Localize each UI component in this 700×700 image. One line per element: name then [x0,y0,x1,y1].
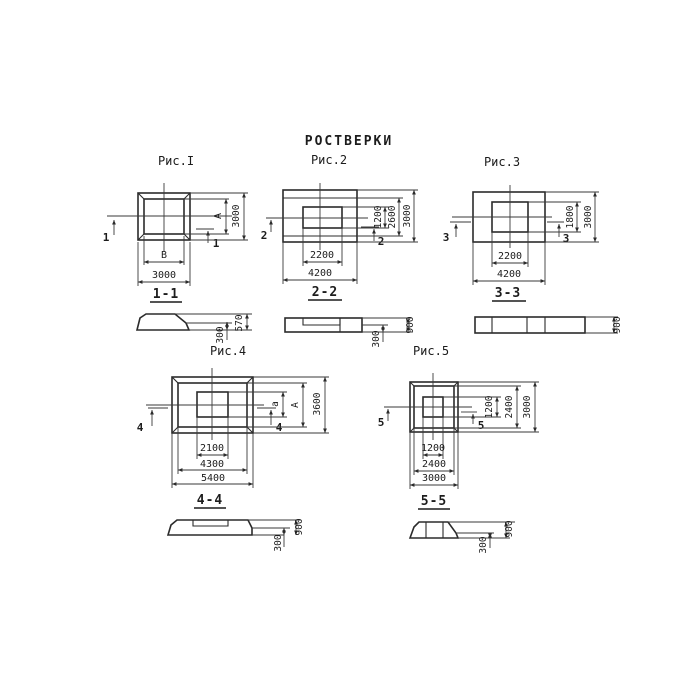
section-mark-label: 2 [378,235,385,248]
drawing-sheet: РОСТВЕРКИ Рис.I 1 1 В [0,0,700,700]
dim-label: А [213,213,224,219]
figure-4-section-view: 4-4 300 900 [168,493,305,552]
dim-label: 300 [215,326,226,343]
section-mark-label: 1 [103,231,110,244]
dim-label: 3600 [312,392,323,415]
figure-1-section-marks: 1 1 [103,220,220,250]
figure-caption: Рис.5 [413,344,449,358]
dim-label: 4200 [308,268,332,279]
dim-label: 900 [294,518,305,535]
section-mark-label: 5 [378,416,385,429]
figure-1: Рис.I 1 1 В 3000 [103,154,252,344]
section-mark-label: 3 [563,232,570,245]
dim-label: 300 [478,536,489,553]
dim-label: 5400 [201,473,225,484]
figure-3-plan-linework [452,185,552,248]
dim-label: 570 [234,314,245,331]
figure-3-section-view: 3-3 900 [475,286,623,334]
figure-5: Рис.5 5 5 1200 2400 [378,344,539,554]
section-mark-label: 2 [261,229,268,242]
figure-4-section-marks: 4 4 [137,408,283,434]
dim-label: 3000 [402,204,413,227]
figure-5-plan-linework [384,373,472,440]
dim-label: 900 [612,316,623,333]
dim-label: 1200 [373,205,384,228]
dim-label: 1200 [421,443,445,454]
dim-label: 300 [273,534,284,551]
dim-label: 3000 [152,270,176,281]
figure-caption: Рис.I [158,154,194,168]
dim-label: 1200 [484,395,495,418]
dim-label: 3000 [231,204,242,227]
figure-3: Рис.3 3 3 2200 4200 1800 [443,155,623,334]
dim-label: 3000 [422,473,446,484]
figure-2-dimensions: 2200 4200 1200 2600 3000 [283,190,418,284]
dim-label: 2600 [387,205,398,228]
dim-label: 1800 [565,205,576,228]
dim-label: 900 [504,520,515,537]
section-title: 4-4 [197,493,223,508]
figure-2: Рис.2 2 2 2200 4200 [261,153,418,348]
figure-4-plan-linework [146,368,264,440]
dim-label: 2400 [504,395,515,418]
figure-caption: Рис.2 [311,153,347,167]
dim-label: 4300 [200,459,224,470]
drawing-title: РОСТВЕРКИ [305,134,393,149]
dim-label: В [161,250,167,261]
figure-5-dimensions: 1200 2400 3000 1200 2400 3000 [410,382,539,489]
section-mark-label: 3 [443,231,450,244]
section-mark-label: 4 [276,421,283,434]
section-mark-label: 5 [478,419,485,432]
figure-2-plan-linework [266,183,368,250]
figure-2-section-view: 2-2 300 900 [285,285,416,348]
dim-label: 900 [405,316,416,333]
dim-label: А [290,402,301,408]
dim-label: 2200 [498,251,522,262]
section-title: 2-2 [312,285,338,300]
dim-label: 2400 [422,459,446,470]
dim-label: 2100 [200,443,224,454]
figure-1-section-view: 1-1 300 570 [137,287,252,344]
figure-caption: Рис.4 [210,344,246,358]
dim-label: 2200 [310,250,334,261]
section-mark-label: 1 [213,237,220,250]
figure-4: Рис.4 4 4 2100 430 [137,344,329,552]
section-title: 3-3 [495,286,521,301]
section-title: 1-1 [153,287,179,302]
dim-label: 3000 [522,395,533,418]
figure-2-section-marks: 2 2 [261,220,385,248]
figure-caption: Рис.3 [484,155,520,169]
dim-label: 3000 [583,205,594,228]
dim-label: 300 [371,330,382,347]
figure-5-section-view: 5-5 300 900 [410,494,515,554]
dim-label: 4200 [497,269,521,280]
section-mark-label: 4 [137,421,144,434]
dim-label: а [270,401,281,407]
technical-drawing-canvas: РОСТВЕРКИ Рис.I 1 1 В [0,0,700,700]
section-title: 5-5 [421,494,447,509]
